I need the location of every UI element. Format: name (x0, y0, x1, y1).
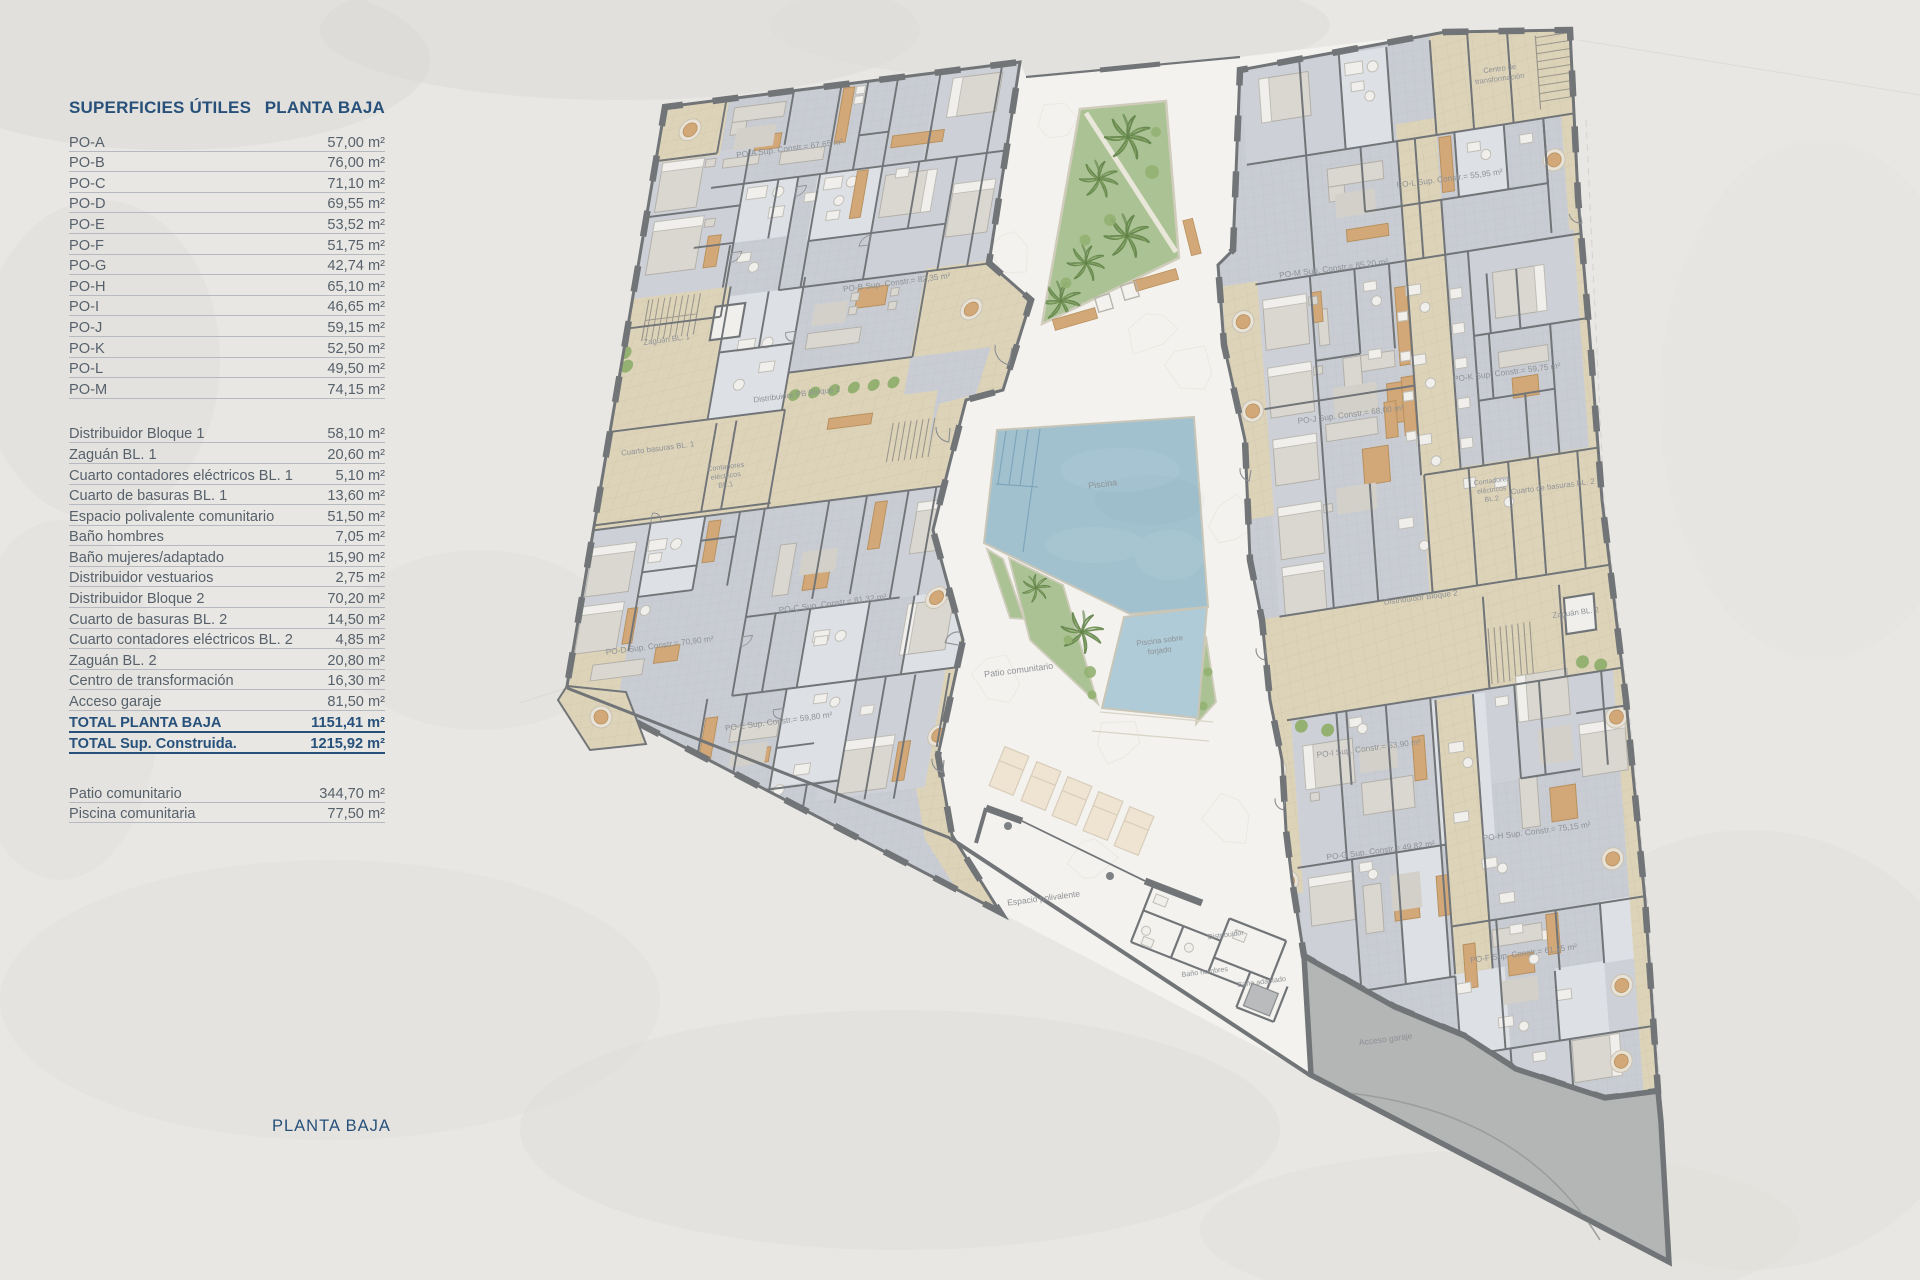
svg-text:BL.1: BL.1 (718, 479, 734, 490)
